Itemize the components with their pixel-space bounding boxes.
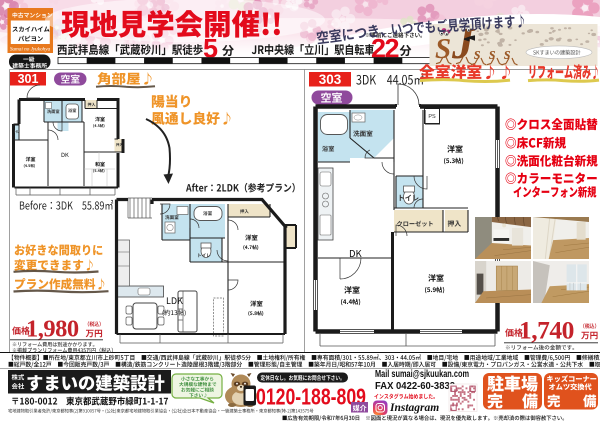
svg-text:Instagram: Instagram: [389, 402, 439, 414]
svg-text:Sumai no Jyukohya: Sumai no Jyukohya: [10, 47, 51, 53]
svg-text:1,740: 1,740: [519, 316, 574, 345]
svg-text:0120-188-809: 0120-188-809: [256, 384, 366, 410]
svg-text:s: s: [488, 44, 496, 63]
svg-text:301: 301: [18, 72, 39, 86]
svg-text:PS: PS: [428, 114, 436, 120]
svg-text:S: S: [435, 33, 451, 65]
svg-text:303: 303: [319, 72, 342, 87]
svg-text:1,980: 1,980: [26, 316, 79, 343]
svg-text:s: s: [503, 44, 511, 63]
svg-text:FAX 0422-60-3833: FAX 0422-60-3833: [375, 380, 455, 392]
svg-text:Mail sumai@sjkuukan.com: Mail sumai@sjkuukan.com: [375, 368, 469, 380]
svg-text:s: s: [473, 44, 481, 63]
